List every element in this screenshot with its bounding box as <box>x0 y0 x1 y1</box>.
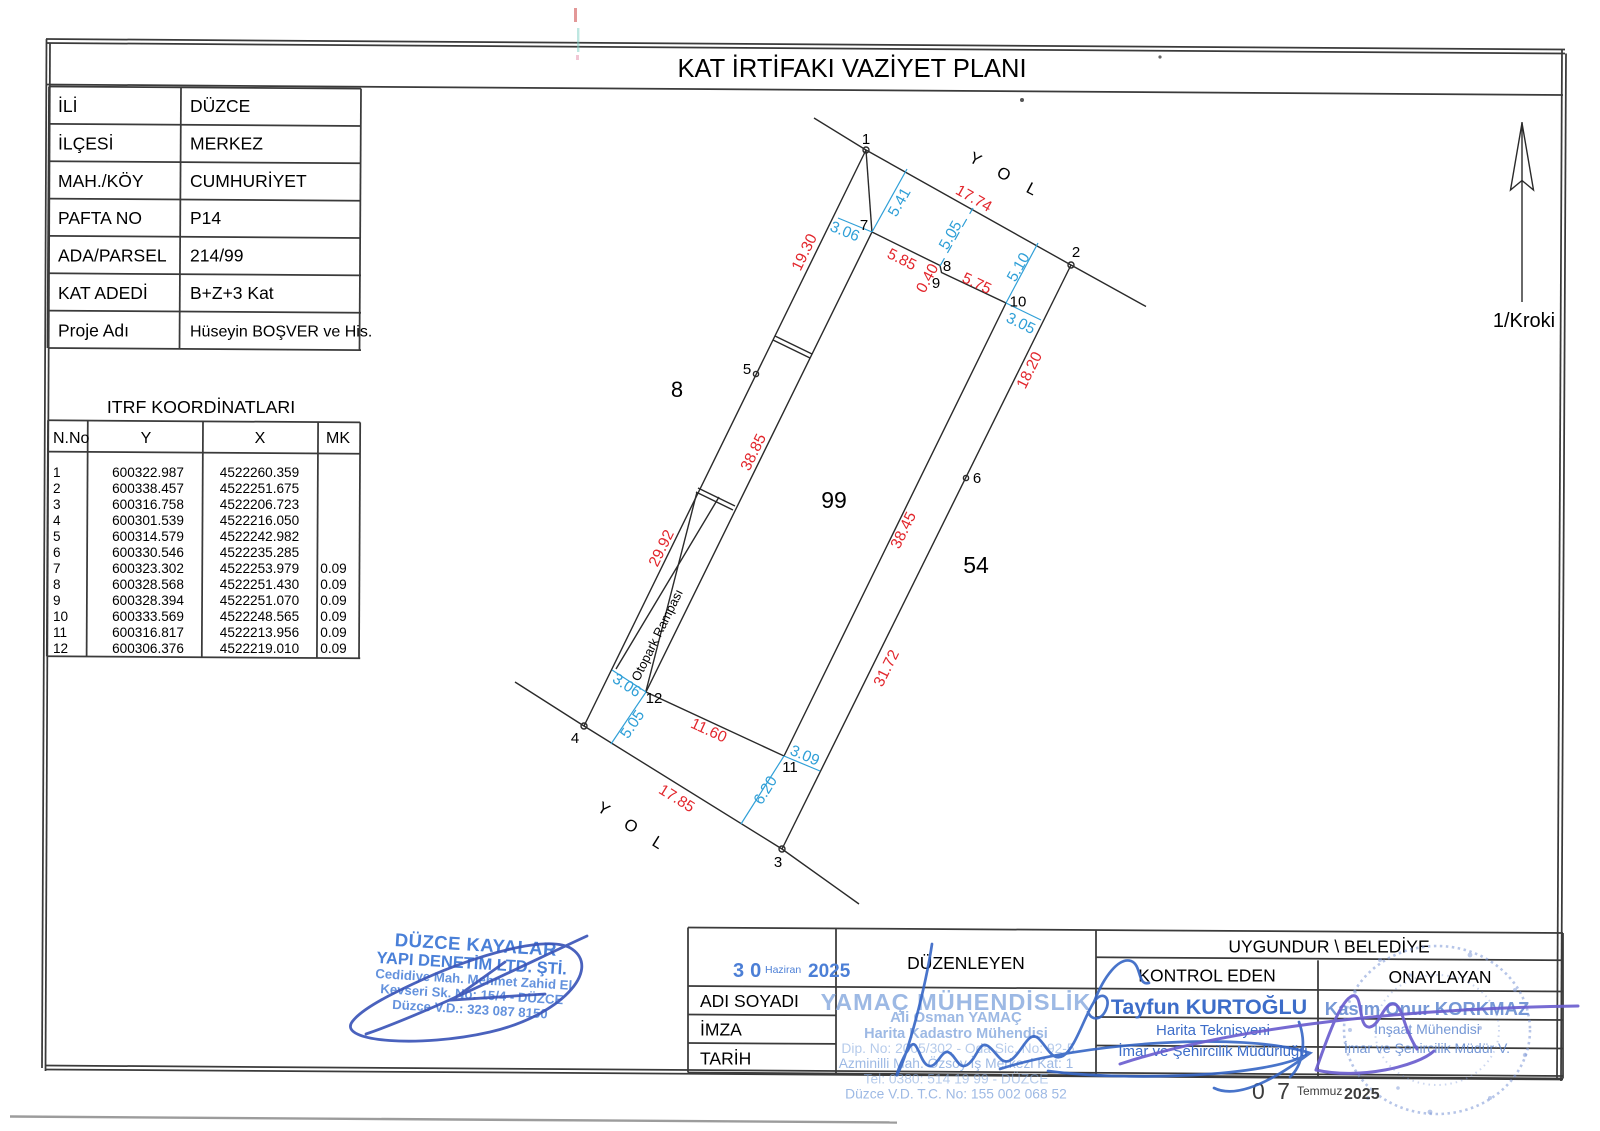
svg-text:İmar ve Şehircilik Müdür V.: İmar ve Şehircilik Müdür V. <box>1344 1039 1510 1056</box>
svg-text:4522251.430: 4522251.430 <box>220 577 300 592</box>
svg-text:0.09: 0.09 <box>320 609 346 624</box>
svg-text:Düzce V.D. T.C. No: 155 002 06: Düzce V.D. T.C. No: 155 002 068 52 <box>845 1087 1067 1102</box>
svg-text:1: 1 <box>862 131 870 148</box>
svg-text:DÜZENLEYEN: DÜZENLEYEN <box>907 953 1025 973</box>
svg-text:0.09: 0.09 <box>320 641 346 656</box>
svg-text:4522219.010: 4522219.010 <box>220 641 300 656</box>
svg-text:30: 30 <box>733 960 767 982</box>
svg-text:Proje Adı: Proje Adı <box>58 320 129 340</box>
svg-text:N.No: N.No <box>53 430 90 447</box>
svg-text:4522242.982: 4522242.982 <box>220 529 299 544</box>
svg-text:0.09: 0.09 <box>320 561 346 576</box>
svg-text:10: 10 <box>1010 294 1027 311</box>
svg-text:İLİ: İLİ <box>58 96 77 116</box>
svg-text:Dip. No: 2005/302 - Oda Sic. N: Dip. No: 2005/302 - Oda Sic. No: 92-5 <box>841 1041 1074 1056</box>
svg-text:4522251.070: 4522251.070 <box>220 593 300 608</box>
svg-text:P14: P14 <box>190 208 221 228</box>
svg-text:4522251.675: 4522251.675 <box>220 481 299 496</box>
svg-text:İnşaat Mühendisi: İnşaat Mühendisi <box>1374 1020 1480 1037</box>
svg-text:4522216.050: 4522216.050 <box>220 513 300 528</box>
svg-text:İMZA: İMZA <box>700 1020 742 1040</box>
svg-text:3: 3 <box>53 497 61 512</box>
svg-text:600316.817: 600316.817 <box>112 625 184 640</box>
svg-text:8: 8 <box>671 377 683 402</box>
svg-text:214/99: 214/99 <box>190 246 244 266</box>
svg-text:600314.579: 600314.579 <box>112 529 184 544</box>
svg-text:5: 5 <box>53 529 61 544</box>
svg-text:KONTROL EDEN: KONTROL EDEN <box>1138 966 1275 986</box>
svg-text:9: 9 <box>53 593 61 608</box>
svg-text:Azminilli Mah. Özsoy İş Merkez: Azminilli Mah. Özsoy İş Merkezi Kat: 1 <box>839 1054 1074 1071</box>
svg-text:ONAYLAYAN: ONAYLAYAN <box>1388 967 1491 987</box>
svg-text:2025: 2025 <box>808 961 851 982</box>
svg-text:2025: 2025 <box>1344 1086 1380 1103</box>
svg-text:X: X <box>255 430 266 447</box>
svg-text:Harita Kadastro Mühendisi: Harita Kadastro Mühendisi <box>864 1026 1048 1042</box>
svg-text:İLÇESİ: İLÇESİ <box>58 133 113 153</box>
svg-text:B+Z+3 Kat: B+Z+3 Kat <box>190 283 274 303</box>
svg-text:1: 1 <box>53 465 61 480</box>
svg-text:Temmuz: Temmuz <box>1297 1084 1342 1098</box>
svg-text:54: 54 <box>963 552 989 578</box>
svg-text:PAFTA NO: PAFTA NO <box>58 208 142 228</box>
svg-text:6: 6 <box>53 545 61 560</box>
svg-text:600322.987: 600322.987 <box>112 465 184 480</box>
svg-text:0.09: 0.09 <box>320 593 346 608</box>
svg-text:ITRF KOORDİNATLARI: ITRF KOORDİNATLARI <box>107 397 295 417</box>
svg-text:Haziran: Haziran <box>765 964 801 976</box>
svg-text:0 7: 0 7 <box>1252 1078 1293 1104</box>
svg-text:6: 6 <box>973 470 981 487</box>
svg-text:MERKEZ: MERKEZ <box>190 133 263 153</box>
svg-text:12: 12 <box>53 641 68 656</box>
svg-text:4522253.979: 4522253.979 <box>220 561 299 576</box>
svg-text:600328.394: 600328.394 <box>112 593 184 608</box>
svg-text:600323.302: 600323.302 <box>112 561 184 576</box>
svg-text:7: 7 <box>53 561 61 576</box>
svg-text:9: 9 <box>932 275 940 292</box>
svg-text:600306.376: 600306.376 <box>112 641 184 656</box>
svg-text:4522213.956: 4522213.956 <box>220 625 299 640</box>
svg-text:4522206.723: 4522206.723 <box>220 497 299 512</box>
svg-text:5: 5 <box>743 361 751 378</box>
svg-text:8: 8 <box>53 577 61 592</box>
svg-text:Hüseyin BOŞVER ve His.: Hüseyin BOŞVER ve His. <box>190 323 372 340</box>
svg-text:7: 7 <box>860 217 868 234</box>
svg-text:8: 8 <box>943 258 951 275</box>
svg-text:600301.539: 600301.539 <box>112 513 184 528</box>
svg-text:ADI SOYADI: ADI SOYADI <box>700 991 799 1011</box>
svg-text:ADA/PARSEL: ADA/PARSEL <box>58 246 167 266</box>
svg-text:DÜZCE: DÜZCE <box>190 96 250 116</box>
svg-text:4522260.359: 4522260.359 <box>220 465 299 480</box>
svg-text:4522235.285: 4522235.285 <box>220 545 299 560</box>
svg-text:2: 2 <box>53 481 61 496</box>
svg-text:MK: MK <box>326 430 350 447</box>
svg-text:600338.457: 600338.457 <box>112 481 184 496</box>
svg-text:99: 99 <box>821 487 847 513</box>
svg-text:600330.546: 600330.546 <box>112 545 184 560</box>
svg-text:Tayfun KURTOĞLU: Tayfun KURTOĞLU <box>1111 994 1307 1019</box>
svg-text:11: 11 <box>782 759 798 776</box>
svg-text:1/Kroki: 1/Kroki <box>1493 310 1555 332</box>
svg-text:4522248.565: 4522248.565 <box>220 609 299 624</box>
svg-text:3: 3 <box>774 854 782 871</box>
svg-text:12: 12 <box>646 690 663 707</box>
svg-text:600333.569: 600333.569 <box>112 609 184 624</box>
svg-text:CUMHURİYET: CUMHURİYET <box>190 171 307 191</box>
svg-text:Y: Y <box>141 430 152 447</box>
svg-text:KAT İRTİFAKI VAZİYET PLANI: KAT İRTİFAKI VAZİYET PLANI <box>677 54 1026 83</box>
svg-text:2: 2 <box>1072 244 1080 261</box>
svg-text:Harita Teknisyeni: Harita Teknisyeni <box>1156 1022 1270 1039</box>
svg-text:11: 11 <box>53 625 67 640</box>
svg-text:0.09: 0.09 <box>320 625 346 640</box>
svg-text:Tel: 0380: 514 19 99 - DÜZCE: Tel: 0380: 514 19 99 - DÜZCE <box>864 1070 1049 1087</box>
svg-text:TARİH: TARİH <box>700 1049 751 1069</box>
svg-text:4: 4 <box>571 730 579 747</box>
svg-text:10: 10 <box>53 609 69 624</box>
svg-text:Ali Osman YAMAÇ: Ali Osman YAMAÇ <box>890 1009 1022 1026</box>
svg-text:600316.758: 600316.758 <box>112 497 184 512</box>
svg-text:0.09: 0.09 <box>320 577 346 592</box>
svg-text:600328.568: 600328.568 <box>112 577 184 592</box>
svg-text:KAT ADEDİ: KAT ADEDİ <box>58 283 148 303</box>
svg-text:4: 4 <box>53 513 61 528</box>
svg-text:MAH./KÖY: MAH./KÖY <box>58 171 144 191</box>
